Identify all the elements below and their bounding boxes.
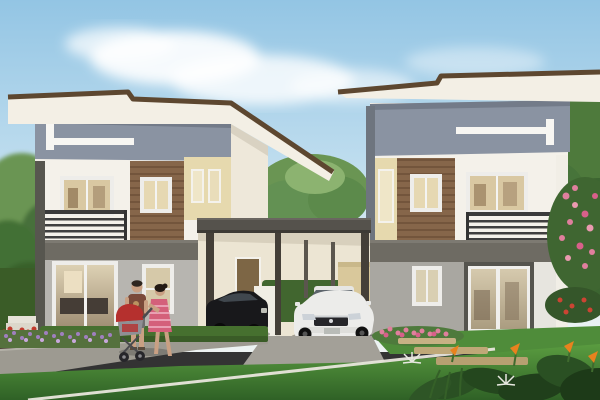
wing-window: [209, 170, 220, 202]
door-frame: [468, 266, 471, 332]
interior-shape: [474, 290, 490, 320]
carport-roof-beam-top: [197, 218, 371, 220]
stroller-wheel-hub: [122, 355, 126, 359]
car-mirror: [295, 302, 300, 306]
carport-rear-post: [304, 240, 308, 298]
right-floor-band-highlight: [370, 240, 568, 243]
wing-window: [379, 170, 393, 222]
left-ground-window: [52, 261, 118, 331]
wheel-hub: [360, 331, 365, 336]
window-mullion: [425, 178, 427, 208]
right-sliding-glass-door: [464, 262, 534, 336]
car-headlight: [348, 313, 361, 320]
license-plate: [324, 328, 340, 334]
carport-post: [275, 233, 281, 335]
wing-window: [192, 170, 203, 202]
left-accent-bar-horizontal: [48, 138, 134, 145]
car-mirror: [366, 301, 371, 305]
purple-flowerbed: [0, 330, 120, 348]
door-frame: [468, 266, 530, 269]
right-accent-bar-vertical: [546, 119, 554, 145]
window-mullion: [155, 181, 157, 209]
right-wood-window: [410, 174, 442, 212]
interior-shape: [503, 182, 517, 206]
interior-window: [64, 271, 82, 293]
interior-shape: [474, 184, 486, 206]
grille-chrome: [314, 316, 348, 318]
carport-roof-beam-edge: [197, 230, 371, 233]
right-ground-window: [412, 266, 442, 306]
architectural-rendering: [0, 0, 600, 400]
left-accent-bar-vertical: [46, 124, 54, 150]
car-headlight: [302, 314, 316, 320]
left-corner-pillar: [35, 161, 45, 338]
man-hair: [132, 280, 143, 286]
right-accent-bar-horizontal: [456, 127, 552, 134]
right-upper-window: [466, 172, 528, 214]
woman-hair-bun: [163, 284, 168, 289]
door-frame: [496, 266, 500, 332]
interior-shape: [93, 186, 105, 208]
door-frame: [527, 266, 530, 332]
stroller-blanket: [122, 324, 138, 332]
car-logo: [329, 319, 333, 323]
interior-shape: [505, 282, 519, 320]
right-floor-band: [370, 240, 568, 262]
window-mullion: [426, 270, 428, 302]
man-shoe: [138, 347, 145, 350]
window-mullion: [86, 180, 88, 212]
left-wood-window: [140, 177, 172, 213]
window-mullion: [496, 176, 498, 210]
car-headlight: [261, 308, 267, 313]
window-mullion: [84, 265, 87, 327]
wheel-hub: [303, 332, 308, 337]
interior-shape: [68, 188, 78, 208]
cloud: [65, 27, 175, 61]
stepping-stone: [398, 338, 456, 344]
stroller-wheel-hub: [138, 354, 142, 358]
